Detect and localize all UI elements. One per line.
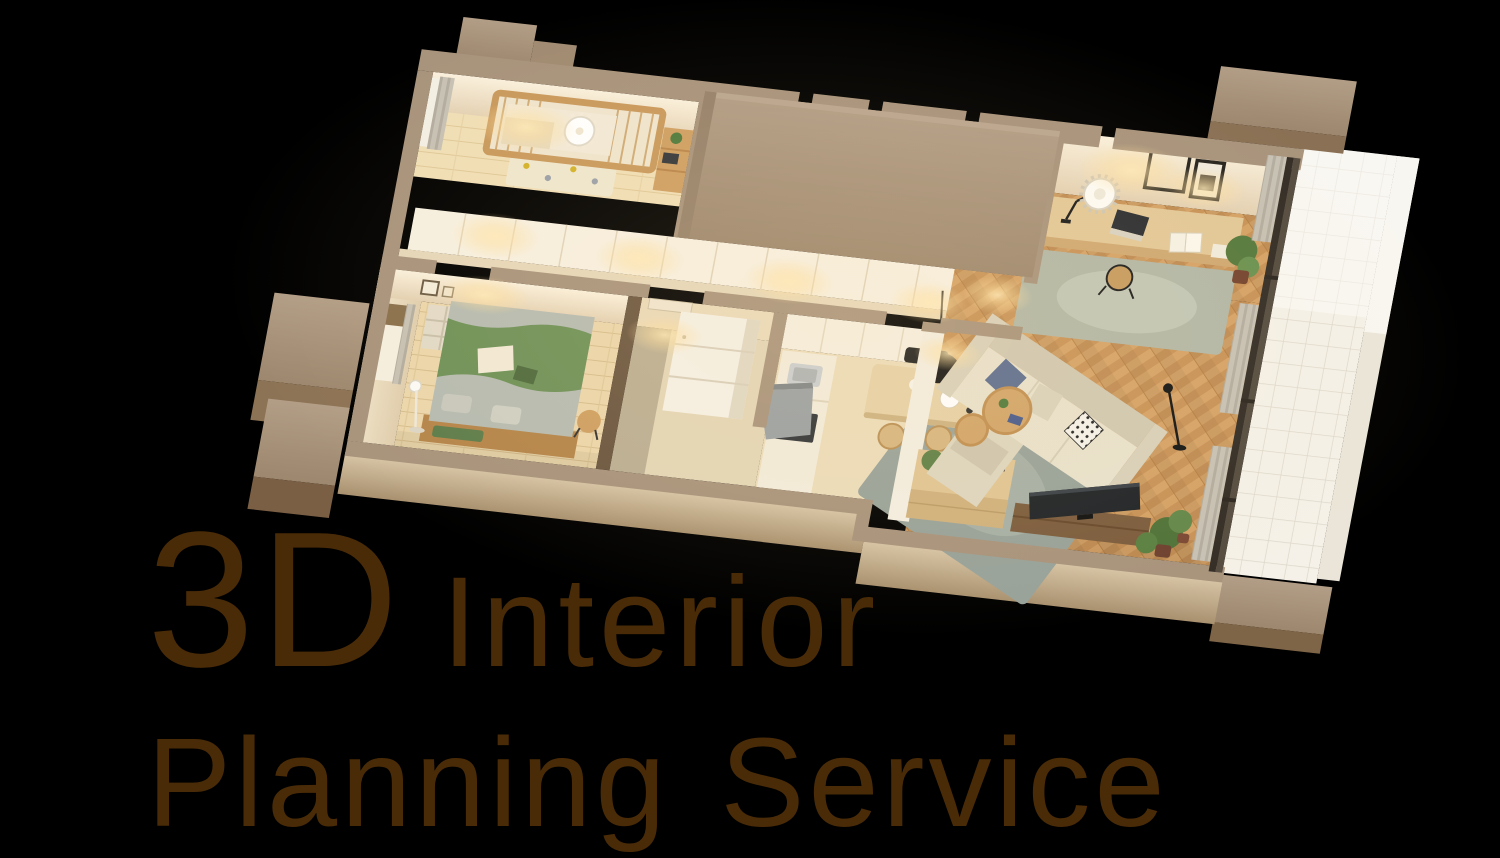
apartment-cutaway [166,0,1500,701]
promo-banner: 3DInterior Planning Service [0,0,1500,858]
floorplan-render [0,0,1500,858]
